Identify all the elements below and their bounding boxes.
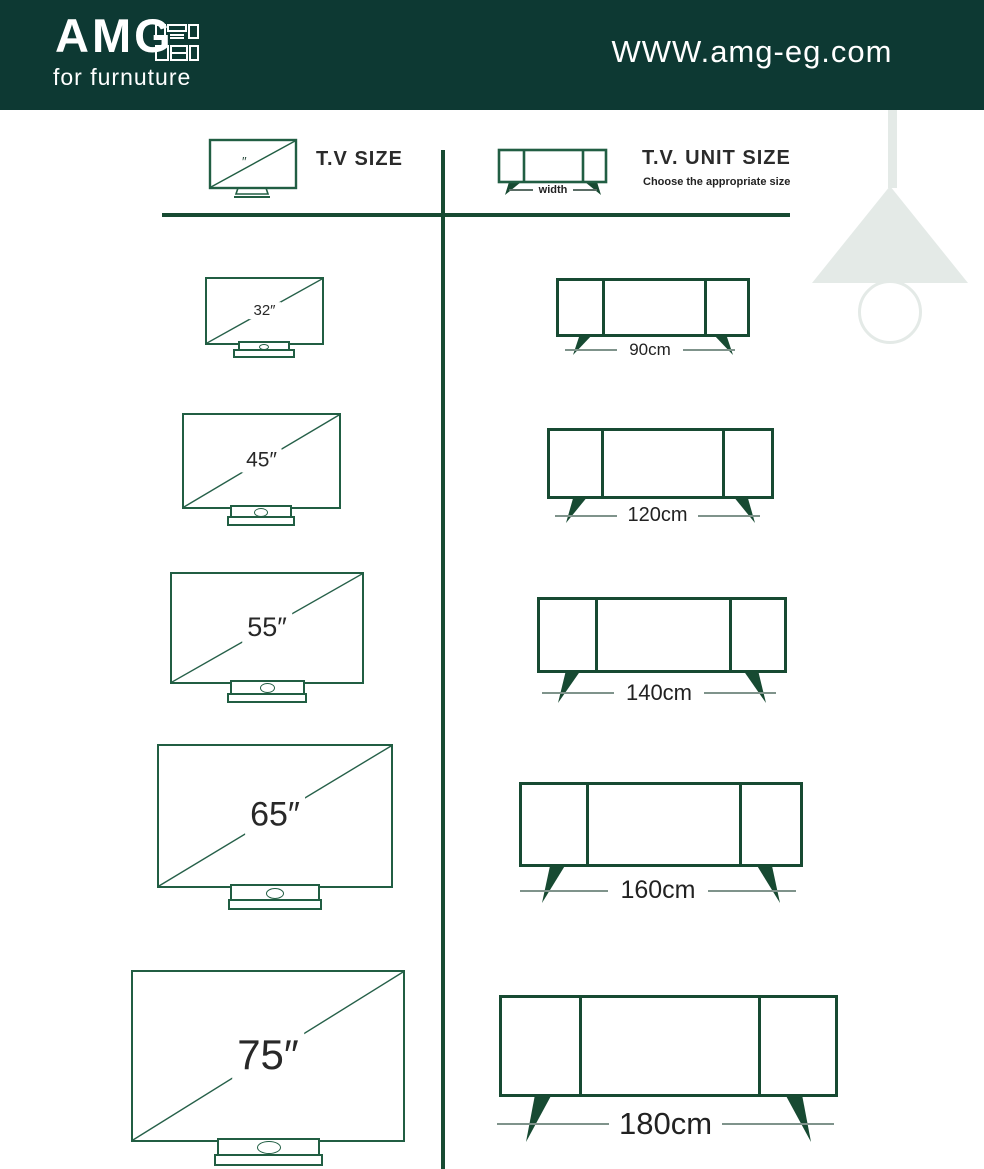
unit-divider [595, 600, 598, 670]
unit-divider [739, 785, 742, 864]
tv-figure-65: 65″ [157, 744, 393, 888]
unit-divider [602, 281, 605, 334]
unit-figure-90 [556, 278, 750, 337]
unit-width-row: 160cm [509, 876, 807, 905]
unit-divider [586, 785, 589, 864]
unit-width-row: 140cm [527, 680, 791, 706]
lamp-cord [888, 110, 897, 188]
dash-right [704, 692, 776, 694]
lamp-shade-icon [812, 186, 968, 283]
unit-width-row: 180cm [489, 1106, 842, 1142]
unit-width-label: 180cm [619, 1106, 712, 1142]
dash-right [722, 1123, 834, 1125]
tv-stand-oval [257, 1141, 281, 1154]
dash-left [520, 890, 608, 892]
unit-figure-140 [537, 597, 787, 673]
unit-width-label: 160cm [620, 876, 695, 905]
tv-stand-base [227, 516, 295, 526]
header-bar: AMG for furnuture WWW.amg-eg.com [0, 0, 984, 110]
unit-divider [704, 281, 707, 334]
dash-right [698, 515, 760, 517]
center-divider-line [441, 150, 445, 1169]
tv-stand-base [227, 693, 307, 703]
dash-right [683, 349, 735, 351]
unit-width-row: 90cm [546, 340, 754, 360]
tv-stand-oval [266, 888, 284, 899]
tv-size-title: T.V SIZE [316, 148, 403, 171]
tv-stand-base [214, 1154, 323, 1166]
infographic-page: AMG for furnuture WWW.amg-eg.com [0, 0, 984, 1169]
cabinet-logo-icon [155, 22, 199, 67]
width-label: width [539, 184, 568, 196]
dash-left [565, 349, 617, 351]
unit-divider [729, 600, 732, 670]
brand-tagline: for furnuture [53, 64, 191, 91]
unit-divider [722, 431, 725, 496]
width-label-row: width [497, 184, 609, 196]
unit-size-subtitle: Choose the appropriate size [643, 176, 790, 188]
width-dash-left [509, 189, 533, 191]
unit-divider [758, 998, 761, 1094]
unit-divider [601, 431, 604, 496]
unit-divider [579, 998, 582, 1094]
dash-left [497, 1123, 609, 1125]
tv-figure-45: 45″ [182, 413, 341, 509]
dash-right [708, 890, 796, 892]
tv-stand-oval [260, 683, 275, 693]
unit-figure-180 [499, 995, 838, 1097]
tv-icon: ″ [208, 138, 300, 207]
tv-size-label: 65″ [245, 796, 305, 835]
unit-width-label: 90cm [629, 340, 671, 360]
tv-stand-base [228, 899, 322, 910]
tv-figure-75: 75″ [131, 970, 405, 1142]
tv-figure-32: 32″ [205, 277, 324, 345]
header-divider-line [162, 213, 790, 217]
tv-size-label: 32″ [249, 302, 281, 319]
lamp-bulb-icon [858, 280, 922, 344]
tv-figure-55: 55″ [170, 572, 364, 684]
unit-figure-160 [519, 782, 803, 867]
tv-size-label: 55″ [242, 612, 292, 643]
tv-stand-base [233, 349, 295, 358]
tv-size-label: 75″ [232, 1031, 304, 1079]
width-dash-right [573, 189, 597, 191]
dash-left [555, 515, 617, 517]
tv-size-label: 45″ [241, 449, 282, 473]
dash-left [542, 692, 614, 694]
tv-icon-inch-mark: ″ [242, 154, 247, 169]
unit-width-row: 120cm [537, 504, 778, 527]
website-url: WWW.amg-eg.com [557, 34, 947, 70]
unit-figure-120 [547, 428, 774, 499]
unit-width-label: 120cm [627, 504, 687, 527]
unit-width-label: 140cm [626, 680, 692, 706]
unit-size-title: T.V. UNIT SIZE [642, 147, 791, 170]
